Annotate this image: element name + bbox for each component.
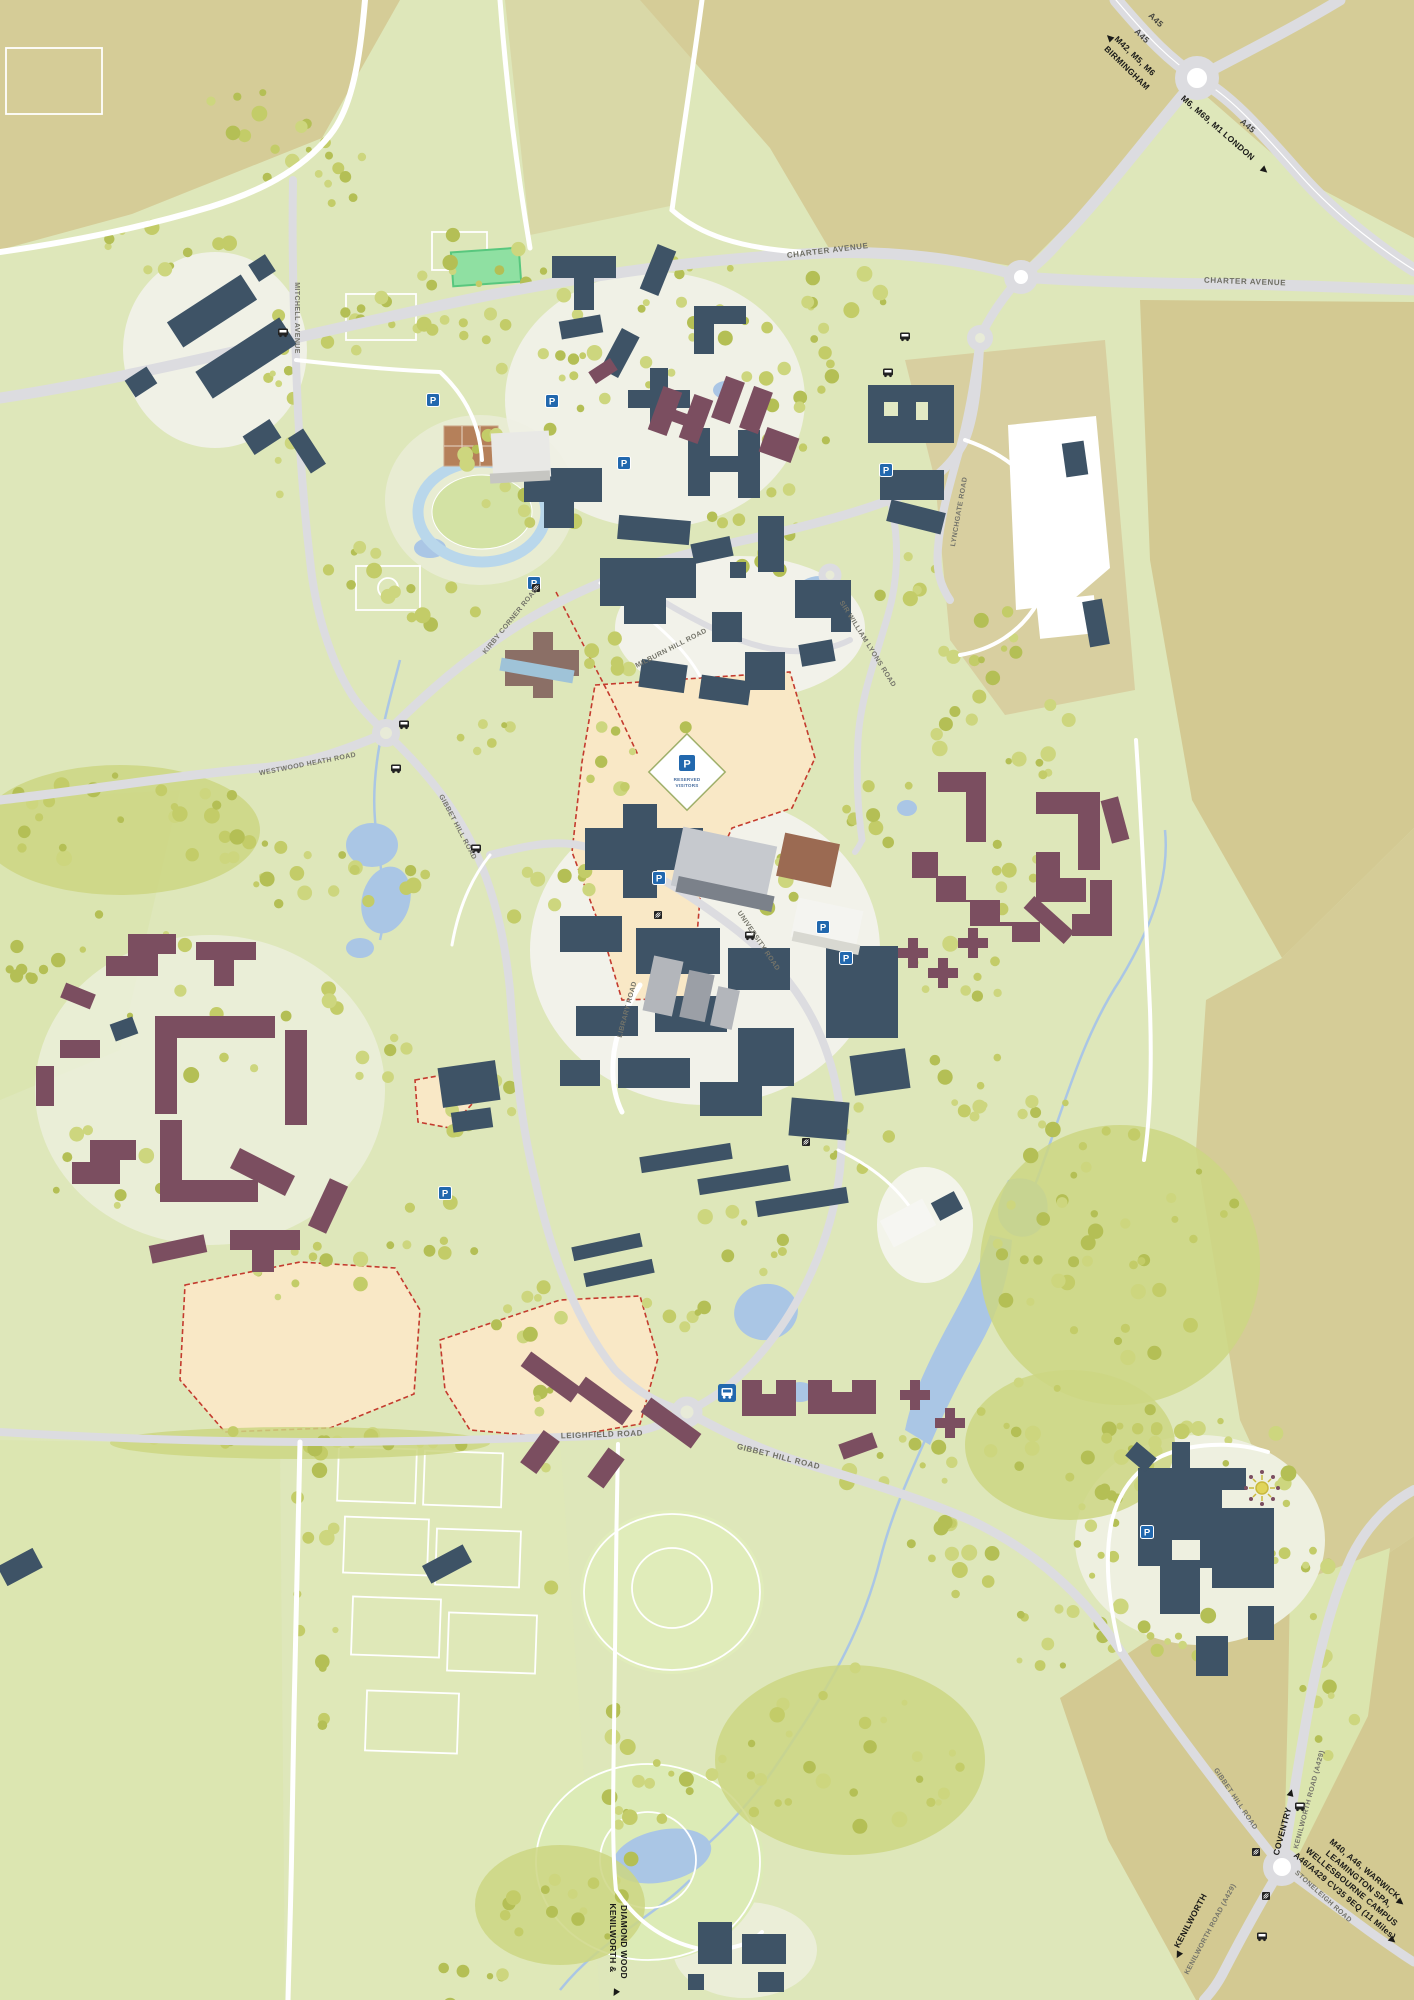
tree — [402, 1240, 411, 1249]
tree — [275, 457, 282, 464]
tree — [622, 1809, 638, 1825]
tree — [476, 281, 483, 288]
parking-letter: P — [883, 466, 890, 477]
tree — [949, 1750, 956, 1757]
wood-blob — [980, 1125, 1260, 1405]
tree — [951, 1590, 960, 1599]
building — [544, 502, 574, 528]
tree — [955, 1763, 964, 1772]
tree — [1283, 1500, 1290, 1507]
athletics-infield — [432, 475, 532, 549]
reserved-label: RESERVED — [674, 777, 701, 782]
tree — [356, 1051, 370, 1065]
tree — [1175, 1633, 1182, 1640]
building — [285, 1030, 307, 1125]
tree — [549, 1874, 561, 1886]
tree — [1147, 1632, 1155, 1640]
tree — [882, 837, 894, 849]
tree — [212, 237, 225, 250]
building — [738, 1028, 794, 1086]
tree — [999, 1293, 1014, 1308]
bus-wheel — [884, 375, 887, 378]
tree — [961, 1545, 977, 1561]
traffic-signal-icon — [1252, 1848, 1260, 1856]
tree — [482, 335, 491, 344]
tree — [540, 267, 547, 274]
tree — [939, 717, 953, 731]
tree — [319, 1530, 335, 1546]
tree — [1062, 713, 1076, 727]
tree — [212, 801, 221, 810]
tree — [503, 1304, 512, 1313]
tree — [318, 1720, 328, 1730]
farmland-bottom-left — [0, 1440, 285, 2000]
tree — [582, 883, 595, 896]
tree — [938, 1788, 950, 1800]
tree — [816, 1773, 831, 1788]
tree — [680, 721, 692, 733]
tree — [274, 899, 283, 908]
sign-diamond-wood-2: DIAMOND WOOD — [619, 1905, 629, 1979]
tree — [974, 613, 989, 628]
tree — [928, 1555, 936, 1563]
visitors-label: VISITORS — [676, 783, 699, 788]
tree — [1137, 1257, 1145, 1265]
tree — [977, 1082, 985, 1090]
tree — [1074, 1540, 1082, 1548]
building — [1248, 1606, 1274, 1640]
tree — [842, 805, 851, 814]
tree — [270, 371, 276, 377]
building — [758, 516, 784, 572]
tree — [1189, 1235, 1197, 1243]
tree — [275, 1294, 282, 1301]
tree — [588, 1877, 600, 1889]
tree — [558, 869, 572, 883]
tree — [523, 1327, 538, 1342]
parking-icon: P — [840, 952, 853, 965]
tree — [1054, 1385, 1061, 1392]
tree — [1269, 1426, 1284, 1441]
tree — [679, 1321, 690, 1332]
tree — [39, 965, 48, 974]
tree — [747, 1771, 755, 1779]
tree — [315, 1654, 330, 1669]
tree — [501, 722, 507, 728]
tree — [806, 271, 820, 285]
tree — [53, 1187, 60, 1194]
building — [700, 1082, 762, 1116]
tree — [1038, 770, 1047, 779]
tree — [629, 748, 636, 755]
tree — [869, 820, 884, 835]
tree — [766, 487, 776, 497]
tree — [172, 806, 187, 821]
tree — [852, 1819, 867, 1834]
tree — [863, 780, 875, 792]
tree — [1070, 1172, 1077, 1179]
tree — [759, 371, 774, 386]
tree — [826, 360, 835, 369]
tree — [698, 1209, 713, 1224]
building — [1196, 1636, 1228, 1676]
tree — [1113, 1599, 1129, 1615]
tree — [332, 1627, 338, 1633]
tree — [825, 369, 839, 383]
bus-window — [393, 766, 400, 769]
building — [1008, 416, 1110, 610]
tree — [916, 1776, 923, 1783]
tree — [59, 844, 67, 852]
bus-wheel — [746, 938, 749, 941]
tree — [346, 580, 356, 590]
tree — [1315, 1735, 1323, 1743]
tree — [204, 808, 220, 824]
farmland-top-center — [505, 0, 700, 235]
tree — [406, 584, 415, 593]
tree — [946, 1457, 957, 1468]
building — [437, 1060, 500, 1108]
tree — [973, 973, 981, 981]
tree — [438, 1963, 449, 1974]
tree — [1009, 646, 1022, 659]
tree — [534, 1395, 541, 1402]
tree — [366, 563, 382, 579]
bus-wheel — [279, 335, 282, 338]
tree — [351, 345, 362, 356]
tree — [1091, 1210, 1098, 1217]
tree — [1089, 1573, 1095, 1579]
tree — [992, 866, 1002, 876]
tree — [849, 1788, 858, 1797]
tree — [966, 714, 978, 726]
tree — [823, 1145, 830, 1152]
tree — [260, 872, 275, 887]
tree — [883, 1130, 895, 1142]
building — [758, 1972, 784, 1992]
tree — [624, 1852, 639, 1867]
building — [698, 1922, 732, 1964]
tree — [524, 517, 535, 528]
tree — [1120, 1350, 1135, 1365]
tree — [1320, 1559, 1335, 1574]
tree — [668, 1771, 674, 1777]
tree — [557, 288, 572, 303]
tree — [759, 1268, 767, 1276]
tree — [206, 97, 215, 106]
tree — [642, 1298, 652, 1308]
tree — [353, 1252, 368, 1267]
tree — [1002, 606, 1013, 617]
tree — [1129, 1261, 1138, 1270]
tree — [1036, 759, 1044, 767]
tree — [328, 199, 336, 207]
building — [560, 1060, 600, 1086]
tree — [1099, 1484, 1110, 1495]
tree — [446, 228, 460, 242]
tree — [350, 865, 360, 875]
tree — [1014, 1461, 1024, 1471]
tree — [644, 1778, 655, 1789]
bus-window — [723, 1390, 731, 1393]
tree — [620, 782, 630, 792]
tree — [554, 1311, 568, 1325]
tree — [521, 1291, 533, 1303]
tree — [972, 991, 983, 1002]
tree — [324, 180, 332, 188]
tree — [1302, 1562, 1309, 1569]
bus-window — [1259, 1934, 1266, 1937]
tree — [514, 1927, 523, 1936]
tree — [544, 1581, 558, 1595]
bus-window — [1297, 1804, 1304, 1807]
building — [884, 402, 898, 416]
building — [36, 1066, 54, 1106]
tree — [500, 1910, 511, 1921]
tree — [1174, 1424, 1190, 1440]
tree — [949, 706, 960, 717]
tree — [611, 726, 621, 736]
tree — [1045, 1122, 1061, 1138]
tree — [993, 1239, 1003, 1249]
building — [60, 1040, 100, 1058]
tree — [417, 271, 427, 281]
parking-letter: P — [442, 1189, 449, 1200]
tree — [407, 612, 417, 622]
tree — [726, 1205, 740, 1219]
bus-wheel — [1258, 1939, 1261, 1942]
tree — [931, 1440, 946, 1455]
parking-letter: P — [820, 923, 827, 934]
roundabout-westwood — [376, 723, 396, 743]
bus-window — [902, 334, 909, 337]
traffic-signal-icon — [1262, 1892, 1270, 1900]
tree — [1281, 1465, 1297, 1481]
tree — [571, 1912, 584, 1925]
tree — [640, 356, 652, 368]
tree — [1012, 752, 1027, 767]
tree — [850, 1662, 861, 1673]
tree — [219, 831, 231, 843]
tree — [386, 1241, 394, 1249]
tree — [1033, 1255, 1042, 1264]
traffic-signal-icon — [802, 1138, 810, 1146]
tree — [1114, 1337, 1122, 1345]
tree — [754, 1773, 767, 1786]
tree — [158, 262, 172, 276]
tree — [899, 1435, 907, 1443]
tree — [1062, 1100, 1069, 1107]
tree — [470, 606, 481, 617]
pond-west — [346, 938, 374, 958]
tree — [482, 499, 491, 508]
tree — [707, 512, 718, 523]
tree — [934, 1520, 949, 1535]
tree — [803, 1761, 816, 1774]
tree — [297, 886, 312, 901]
tree — [1191, 1421, 1206, 1436]
tree — [259, 89, 266, 96]
tree — [220, 853, 231, 864]
tree — [761, 322, 773, 334]
tree — [262, 840, 268, 846]
parking-letter: P — [843, 954, 850, 965]
tree — [632, 1775, 645, 1788]
tree — [984, 1444, 997, 1457]
parking-icon: P — [546, 395, 559, 408]
astroturf-pitch — [451, 248, 521, 287]
tree — [990, 956, 1000, 966]
tree — [794, 401, 806, 413]
tree — [960, 985, 971, 996]
tree — [384, 1044, 396, 1056]
tree — [783, 483, 796, 496]
bus-wheel — [901, 339, 904, 342]
sign-diamond-wood-1: KENILWORTH & — [608, 1903, 618, 1972]
tree — [1328, 1692, 1335, 1699]
parking-icon: P — [817, 921, 830, 934]
tree — [568, 1889, 578, 1899]
tree — [491, 1319, 502, 1330]
bus-wheel — [405, 727, 408, 730]
tree — [697, 1301, 711, 1315]
tree — [507, 1107, 516, 1116]
campus-map-canvas: P RESERVED VISITORS PPPPPPPPPP CHARTER A… — [0, 0, 1414, 2000]
tree — [1098, 1552, 1105, 1559]
tree — [506, 1890, 521, 1905]
tree — [322, 993, 337, 1008]
tree — [952, 1562, 968, 1578]
tree — [986, 671, 1001, 686]
tree — [487, 1973, 493, 1979]
tree — [818, 346, 831, 359]
tree — [155, 784, 167, 796]
tree — [920, 1462, 926, 1468]
building — [742, 1934, 786, 1964]
tree — [139, 1148, 155, 1164]
building — [702, 456, 742, 472]
tree — [511, 242, 525, 256]
building — [788, 1098, 849, 1141]
tree — [357, 304, 366, 313]
tree — [1044, 699, 1056, 711]
tree — [114, 1202, 121, 1209]
tree — [799, 443, 807, 451]
building — [688, 1974, 704, 1990]
tree — [457, 734, 465, 742]
tree — [676, 297, 687, 308]
tree — [487, 738, 497, 748]
building — [1062, 441, 1089, 478]
tree — [1217, 1418, 1223, 1424]
tree — [1102, 1126, 1111, 1135]
tree — [801, 296, 814, 309]
building — [730, 562, 746, 578]
roundabout-a45 — [1181, 62, 1213, 94]
tree — [1138, 1620, 1151, 1633]
bus-window — [401, 722, 408, 725]
tree — [1006, 758, 1012, 764]
tree — [985, 1546, 1000, 1561]
tree — [774, 1799, 782, 1807]
tree — [1003, 1423, 1009, 1429]
bus-wheel — [392, 771, 395, 774]
tree — [770, 1707, 785, 1722]
building — [868, 385, 954, 443]
tree — [320, 1253, 333, 1266]
tree — [457, 1965, 470, 1978]
tree — [349, 193, 358, 202]
tree — [1200, 1608, 1216, 1624]
tree — [484, 308, 497, 321]
tree — [951, 1099, 958, 1106]
bus-wheel — [397, 771, 400, 774]
tree — [1065, 1473, 1074, 1482]
tree — [922, 985, 930, 993]
tree — [1171, 1216, 1178, 1223]
tree — [718, 331, 733, 346]
tree — [880, 1717, 887, 1724]
development-zone-southwest — [180, 1262, 420, 1432]
tree — [253, 881, 259, 887]
parking-icon: P — [653, 872, 666, 885]
tree — [507, 909, 521, 923]
tree — [741, 371, 752, 382]
tree — [1121, 1324, 1130, 1333]
tree — [252, 106, 268, 122]
tree — [443, 255, 458, 270]
tree — [1310, 1613, 1317, 1620]
tree — [1081, 1162, 1092, 1173]
campus-map: P RESERVED VISITORS PPPPPPPPPP CHARTER A… — [0, 0, 1414, 2000]
tree — [657, 1813, 668, 1824]
tree — [930, 1055, 941, 1066]
tree — [817, 386, 825, 394]
tree — [405, 1203, 415, 1213]
building — [849, 1048, 910, 1095]
tree — [996, 1248, 1008, 1260]
parking-icon: P — [618, 457, 631, 470]
tree — [1025, 1441, 1040, 1456]
tree — [276, 491, 284, 499]
tree — [996, 881, 1008, 893]
roundabout-lynchgate — [971, 329, 989, 347]
tree — [993, 989, 1001, 997]
tree — [1322, 1680, 1337, 1695]
tree — [818, 323, 829, 334]
tree — [853, 1102, 863, 1112]
tree — [877, 1452, 884, 1459]
tree — [1220, 1210, 1228, 1218]
tree — [370, 548, 381, 559]
tree — [718, 1755, 726, 1763]
tree — [548, 898, 561, 911]
tree — [972, 1100, 986, 1114]
building — [574, 258, 594, 310]
parking-letter: P — [549, 397, 556, 408]
tree — [315, 170, 323, 178]
tree — [10, 940, 23, 953]
tree — [1279, 1547, 1291, 1559]
tree — [496, 1968, 509, 1981]
tree — [866, 808, 880, 822]
tree — [1299, 1685, 1306, 1692]
tree — [1017, 1611, 1025, 1619]
tree — [993, 840, 1002, 849]
tree — [1164, 1638, 1171, 1645]
tree — [1030, 1107, 1041, 1118]
tree — [935, 1799, 941, 1805]
